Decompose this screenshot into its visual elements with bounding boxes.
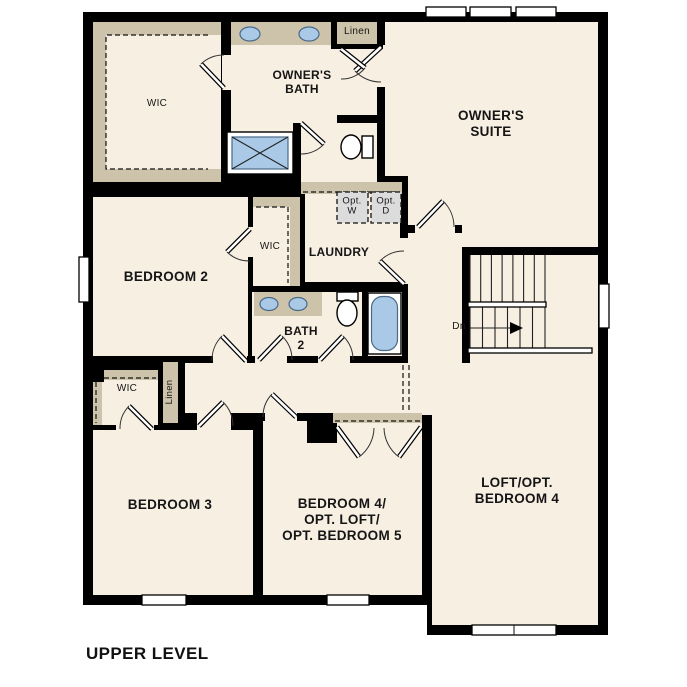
stair-landing	[468, 302, 546, 307]
bedroom3-wic-label: WIC	[117, 383, 137, 395]
bedroom4-label: BEDROOM 4/ OPT. LOFT/ OPT. BEDROOM 5	[282, 496, 402, 544]
window	[426, 7, 466, 17]
owners-wic-label: WIC	[147, 98, 167, 110]
laundry-label: LAUNDRY	[309, 245, 369, 259]
stair-rail	[468, 348, 592, 353]
bedroom2-wic-shelf	[290, 207, 300, 286]
window	[470, 7, 511, 17]
sink-icon	[260, 298, 278, 311]
page-title: UPPER LEVEL	[86, 644, 208, 664]
window	[327, 595, 369, 605]
sink-icon	[240, 27, 260, 41]
owners-suite-label: OWNER'S SUITE	[458, 108, 524, 140]
owners-wic-shelf	[93, 22, 106, 182]
bedroom3-wic-shelf	[93, 382, 102, 425]
floor-plan: WIC OWNER'S BATH Linen OWNER'S SUITE BED…	[0, 0, 687, 687]
bedroom2-wic-label: WIC	[260, 241, 280, 253]
bathtub-basin	[372, 297, 398, 351]
opt-dryer-label: Opt. D	[376, 197, 395, 218]
loft-label: LOFT/OPT. BEDROOM 4	[475, 475, 559, 507]
sink-icon	[289, 298, 307, 311]
sink-icon	[299, 27, 319, 41]
linen-upper-label: Linen	[344, 26, 370, 38]
stairs-down-label: Dn	[452, 321, 465, 333]
bedroom3-label: BEDROOM 3	[128, 497, 212, 513]
toilet-icon	[337, 300, 357, 326]
bedroom2-label: BEDROOM 2	[124, 269, 208, 285]
bath2-label: BATH 2	[284, 324, 318, 352]
window	[599, 284, 609, 328]
owners-wic-shelf	[93, 22, 221, 35]
toilet-icon	[341, 135, 361, 159]
bedroom2-wic-shelf	[253, 197, 300, 207]
window	[516, 7, 556, 17]
window	[142, 595, 186, 605]
toilet-icon	[362, 136, 373, 158]
opt-washer-label: Opt. W	[342, 197, 361, 218]
floor-plan-drawing	[0, 0, 687, 687]
window	[79, 257, 89, 302]
owners-bath-label: OWNER'S BATH	[273, 68, 332, 96]
owners-wic-shelf	[93, 169, 221, 182]
hall-linen-label: Linen	[165, 380, 175, 405]
